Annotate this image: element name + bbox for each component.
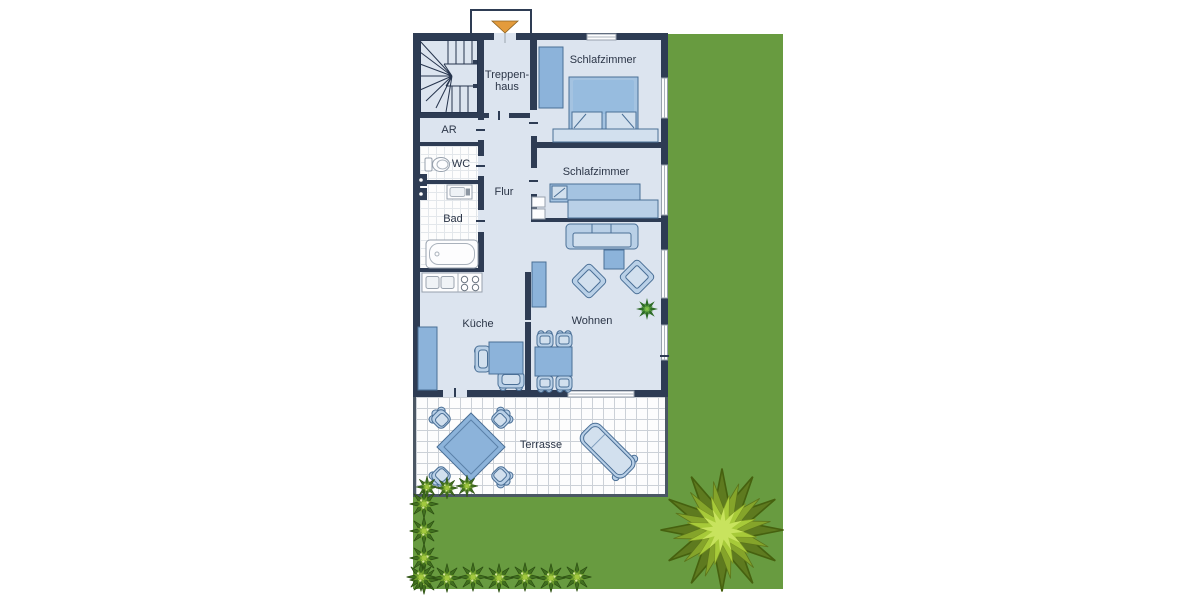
- door-opening-bad: [478, 210, 484, 232]
- room-wohnen: [531, 222, 661, 390]
- room-schlafzimmer-mid: [537, 148, 661, 218]
- door-opening-wc: [478, 156, 484, 176]
- label-kueche: Küche: [462, 318, 493, 330]
- label-terrasse: Terrasse: [520, 439, 562, 451]
- floorplan-canvas: Treppen- haus Schlafzimmer AR WC Flur Sc…: [0, 0, 1200, 600]
- door-opening-ar: [478, 120, 484, 140]
- door-opening-schlafzimmer-top: [530, 110, 537, 136]
- door-opening-kueche-terrasse: [443, 390, 467, 397]
- label-treppenhaus-line1: Treppen-: [485, 69, 529, 81]
- label-wc: WC: [452, 158, 470, 170]
- label-schlafzimmer-top: Schlafzimmer: [570, 54, 637, 66]
- label-treppenhaus-line2: haus: [485, 81, 529, 93]
- room-staircase: [420, 40, 478, 113]
- label-wohnen: Wohnen: [572, 315, 613, 327]
- room-bad: [420, 184, 478, 268]
- label-treppenhaus: Treppen- haus: [485, 69, 529, 93]
- label-bad: Bad: [443, 213, 463, 225]
- entrance-marker-box: [470, 9, 532, 35]
- label-abstellraum: AR: [441, 124, 456, 136]
- label-flur: Flur: [495, 186, 514, 198]
- door-opening-schlafzimmer-mid: [530, 168, 537, 194]
- label-schlafzimmer-mid: Schlafzimmer: [563, 166, 630, 178]
- door-opening-entrance: [494, 33, 516, 40]
- room-kueche: [420, 272, 525, 390]
- door-opening-treppenhaus-flur: [489, 113, 509, 118]
